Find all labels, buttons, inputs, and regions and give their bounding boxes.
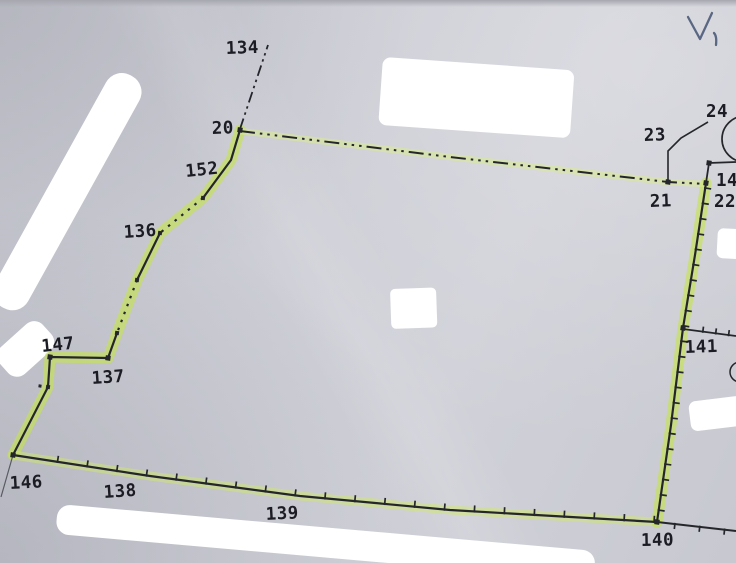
ticks-bottom-tick [87,460,88,467]
whiteout-mid [390,287,437,329]
ticks-right-tick [687,295,694,296]
point-label-21: 21 [649,191,672,212]
ticks-bottom-tick [414,501,415,508]
edge-circle-top-right [722,116,736,162]
ticks-right-tick [704,188,711,189]
ticks-bottom-extension-tick [674,523,675,529]
point-label-152: 152 [184,159,219,182]
vertex-dot [237,127,243,133]
point-label-137: 137 [91,367,125,389]
point-label-24: 24 [706,102,728,122]
whiteout-right-lower [688,395,736,431]
ticks-right-tick [671,418,678,419]
vertex-dot [703,180,709,186]
ticks-right-tick [692,264,699,265]
ticks-right-tick [669,433,676,434]
point-label-141: 141 [684,337,718,358]
ticks-bottom-tick [355,495,356,502]
ticks-bottom-tick [146,470,147,477]
ticks-branch-141-tick [716,328,717,334]
survey-map-svg: 1342015213614713714613813914014121222324… [0,0,736,563]
ticks-right-tick [697,234,704,235]
vertex-dot [38,384,41,387]
ticks-right-tick [690,280,697,281]
ticks-bottom-tick [57,456,58,463]
vertex-dot [135,278,140,283]
ticks-right-tick [674,387,681,388]
ticks-right-tick [702,203,709,204]
ticks-right-tick [685,310,692,311]
ticks-bottom-tick [385,498,386,505]
point-label-22: 22 [714,192,736,212]
handwriting-mark [714,33,716,45]
edge-circle-mid-right [730,362,736,382]
ticks-bottom-tick [176,474,177,481]
ticks-bottom-extension-tick [724,529,725,535]
ticks-bottom-tick [117,465,118,472]
ticks-right-tick [664,464,671,465]
whiteout-top-center [378,57,574,138]
vertex-dot [665,179,671,185]
point-label-138: 138 [103,481,137,503]
vertex-dot [654,519,660,525]
point-label-136: 136 [123,221,157,243]
ticks-bottom-extension-tick [699,526,700,532]
vertex-dot [706,160,712,166]
point-label-23: 23 [643,125,666,146]
ticks-right-tick [699,218,706,219]
vertex-dot [201,196,206,201]
ticks-bottom-tick [325,492,326,499]
ticks-right-tick [662,479,669,480]
ticks-branch-141-tick [728,330,729,336]
point-label-147-right-clipped: 147 [716,171,736,191]
ticks-bottom-tick [444,504,445,511]
vertex-dot [680,325,686,331]
point-label-139: 139 [265,503,299,525]
ticks-right-tick [695,249,702,250]
point-label-146: 146 [9,472,43,494]
ticks-bottom-tick [206,478,207,485]
handwriting-mark [688,13,712,39]
whiteout-right-upper [716,228,736,259]
leader-line-23-24 [668,122,708,182]
ticks-right-tick [658,510,665,511]
ticks-right-tick [676,372,683,373]
ticks-right-tick [673,403,680,404]
scanned-survey-plan: 1342015213614713714613813914014121222324… [0,0,736,563]
point-label-134: 134 [225,38,259,59]
point-label-147: 147 [40,334,75,357]
vertex-dot [115,331,120,336]
ticks-right-tick [660,495,667,496]
point-label-140: 140 [641,530,674,551]
ticks-bottom-tick [265,485,266,492]
ticks-right-tick [666,449,673,450]
vertex-dot [10,452,16,458]
ticks-bottom-tick [295,489,296,496]
whiteout-left-diagonal [0,67,148,317]
ticks-bottom-tick [235,481,236,488]
vertex-dot [158,231,163,236]
vertex-dot [105,355,111,361]
ticks-branch-141-tick [703,327,704,333]
vertex-dot [46,385,51,390]
point-label-20: 20 [211,118,234,139]
